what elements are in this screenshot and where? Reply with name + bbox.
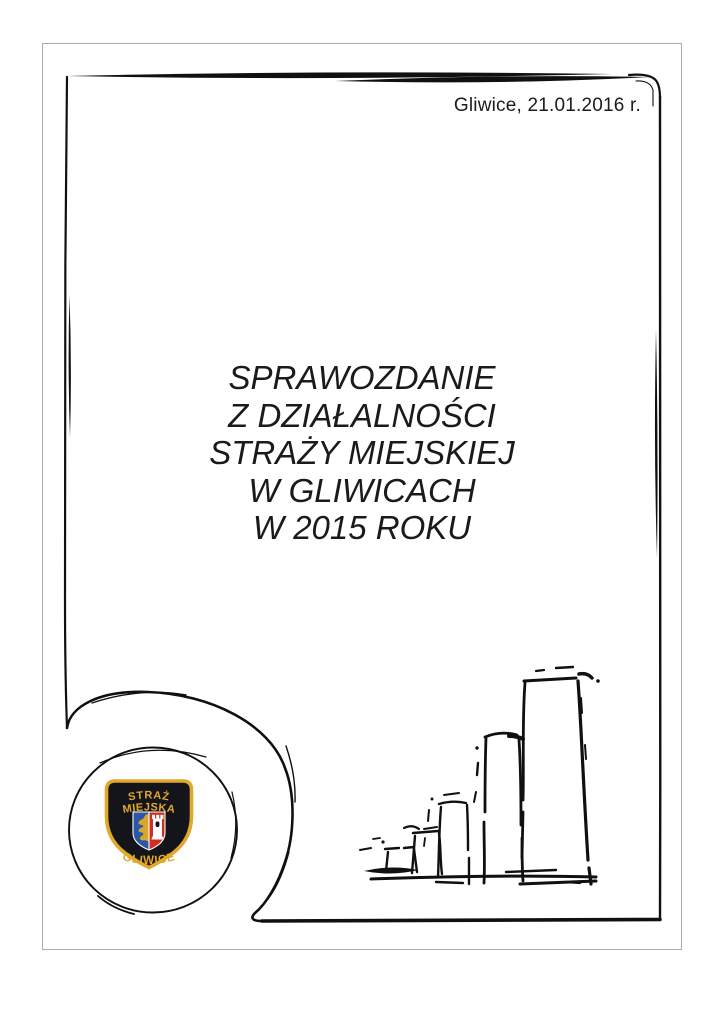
title-line: W GLIWICACH [42,472,682,510]
badge-text-straz: STRAŻ [127,789,171,803]
page-title: SPRAWOZDANIE Z DZIAŁALNOŚCI STRAŻY MIEJS… [42,359,682,547]
report-cover-page: { "page": { "date_line": "Gliwice, 21.01… [0,0,725,1024]
straz-miejska-badge: STRAŻ MIEJSKA GLIWICE [98,776,200,878]
title-line: STRAŻY MIEJSKIEJ [42,434,682,472]
title-line: Z DZIAŁALNOŚCI [42,397,682,435]
tower-icon [152,815,164,840]
title-line: W 2015 ROKU [42,509,682,547]
svg-text:STRAŻ: STRAŻ [127,789,171,803]
date-text: Gliwice, 21.01.2016 r. [454,95,641,117]
title-line: SPRAWOZDANIE [42,359,682,397]
